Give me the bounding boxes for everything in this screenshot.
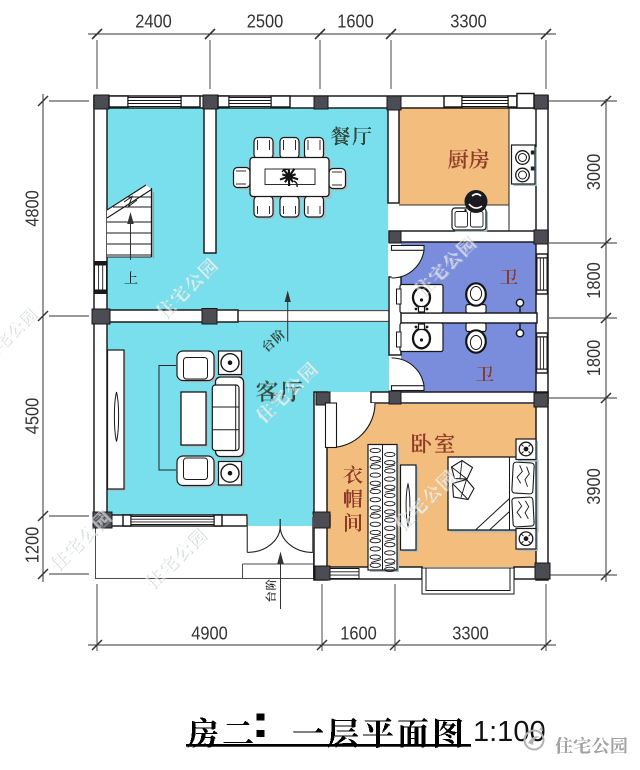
svg-text:2400: 2400 <box>135 11 172 32</box>
svg-text:1:100: 1:100 <box>473 716 546 748</box>
svg-text:1600: 1600 <box>340 623 377 644</box>
svg-text:1600: 1600 <box>337 11 374 32</box>
svg-text:1200: 1200 <box>22 527 43 564</box>
svg-text:4800: 4800 <box>22 190 43 227</box>
svg-text:3300: 3300 <box>450 11 487 32</box>
svg-text:2500: 2500 <box>247 11 284 32</box>
svg-text:3000: 3000 <box>583 154 604 191</box>
svg-text:3900: 3900 <box>583 468 604 505</box>
svg-text:1800: 1800 <box>583 340 604 377</box>
svg-text:4500: 4500 <box>22 398 43 435</box>
svg-text:3300: 3300 <box>452 623 489 644</box>
svg-text:1800: 1800 <box>583 262 604 299</box>
svg-text:4900: 4900 <box>191 623 228 644</box>
